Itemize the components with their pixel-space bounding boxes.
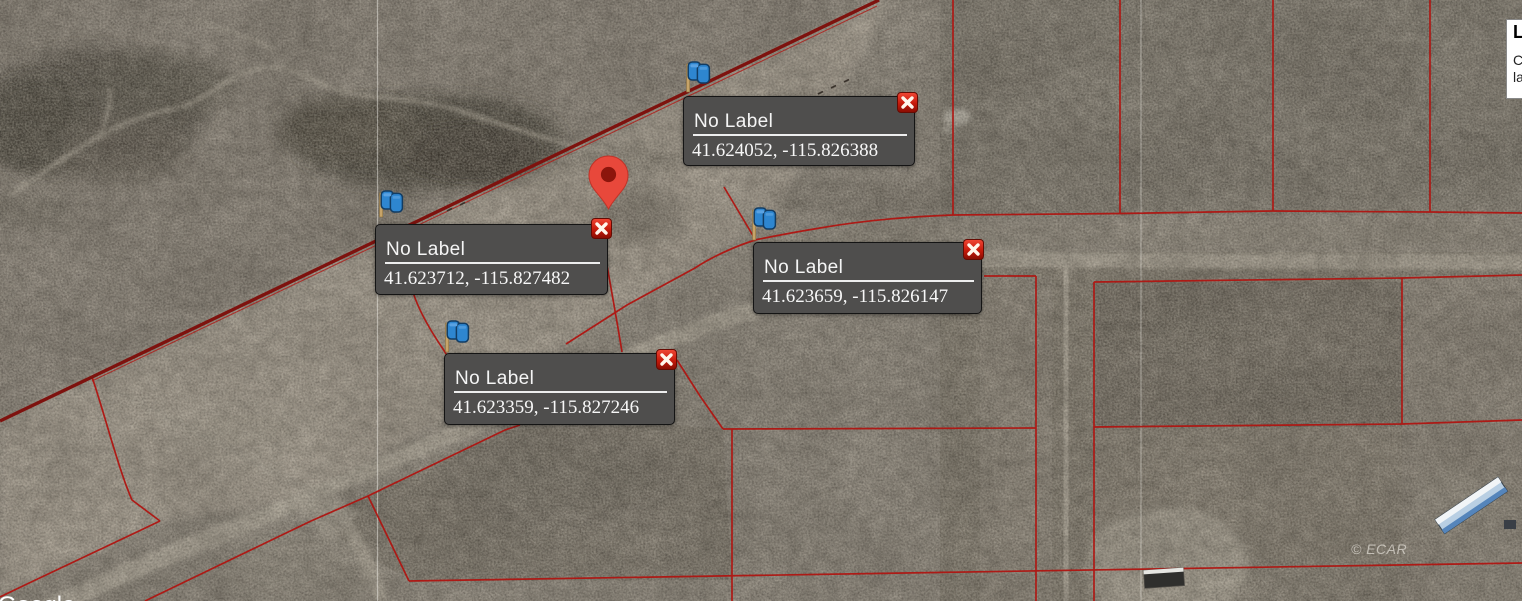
svg-text:© ECAR: © ECAR [1351, 541, 1407, 557]
